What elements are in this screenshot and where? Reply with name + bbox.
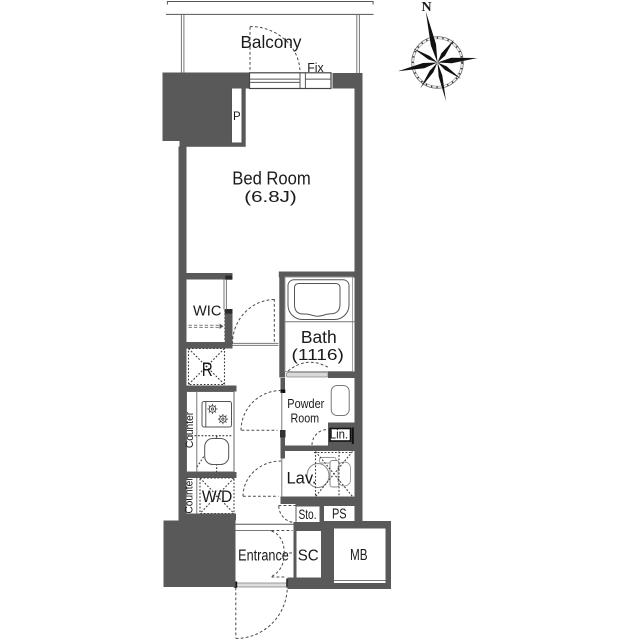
svg-text:P: P: [233, 111, 241, 123]
svg-text:Counter: Counter: [184, 477, 196, 514]
svg-text:Entrance: Entrance: [238, 548, 289, 565]
svg-text:Counter: Counter: [184, 412, 196, 449]
svg-text:MB: MB: [350, 547, 368, 564]
svg-text:Bed Room: Bed Room: [232, 169, 311, 190]
svg-text:SC: SC: [298, 548, 319, 565]
svg-text:W/D: W/D: [202, 487, 232, 506]
svg-text:(6.8J): (6.8J): [244, 189, 297, 206]
svg-text:Sto.: Sto.: [298, 506, 316, 522]
svg-text:WIC: WIC: [193, 303, 222, 320]
svg-text:Room: Room: [290, 411, 319, 426]
svg-text:R: R: [202, 359, 213, 381]
svg-text:Lin.: Lin.: [330, 426, 348, 441]
svg-text:Powder: Powder: [287, 396, 325, 411]
svg-text:(1116): (1116): [292, 347, 344, 364]
svg-text:N: N: [421, 0, 431, 15]
svg-text:PS: PS: [332, 506, 347, 522]
svg-text:Bath: Bath: [301, 327, 337, 347]
svg-text:Lav.: Lav.: [286, 468, 316, 487]
